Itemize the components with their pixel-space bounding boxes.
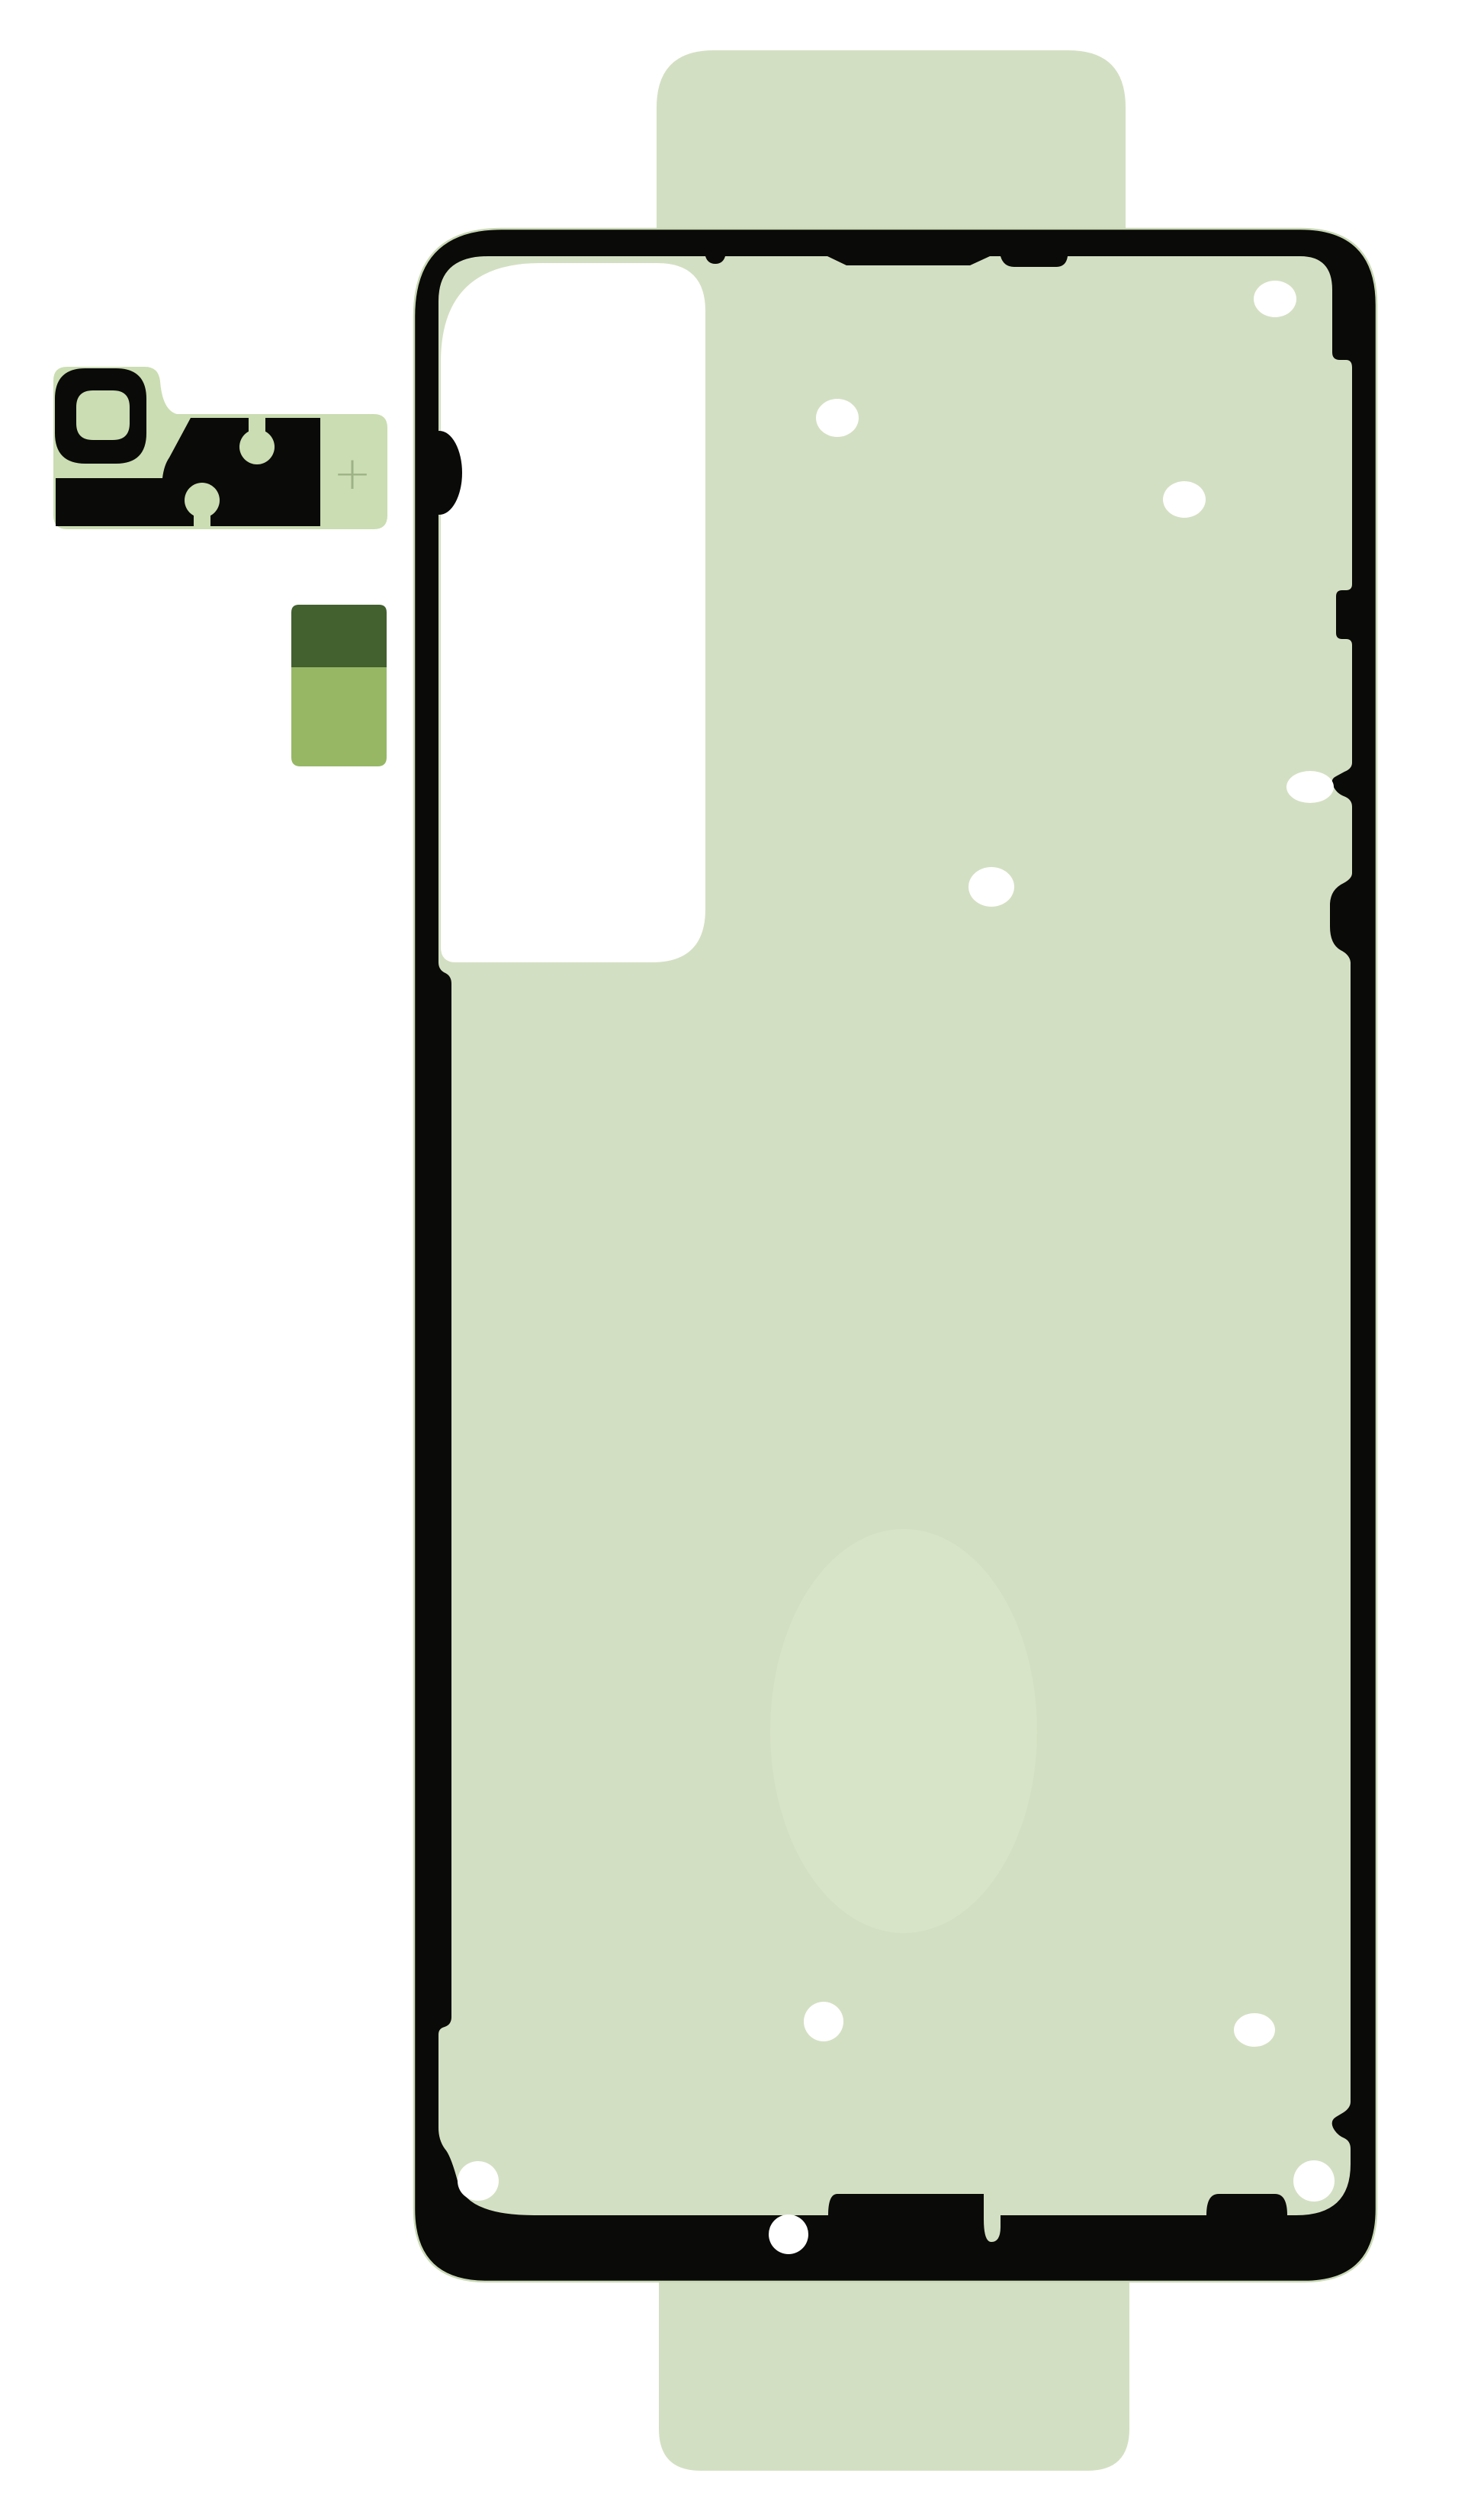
adhesive-hole bbox=[968, 867, 1014, 907]
keyhole-circle-top bbox=[239, 429, 275, 464]
camera-island-cutout bbox=[441, 263, 705, 962]
adhesive-kit-illustration: + bbox=[0, 0, 1484, 2518]
plus-registration-mark: + bbox=[333, 447, 371, 500]
adhesive-hole bbox=[1293, 2160, 1335, 2202]
liner-sheen-blob bbox=[770, 1529, 1037, 1933]
pull-tab-squares-piece bbox=[291, 605, 387, 766]
product-photo: + bbox=[0, 0, 1484, 2518]
adhesive-hole bbox=[1163, 481, 1206, 518]
adhesive-hole bbox=[816, 399, 859, 437]
pull-square-light bbox=[291, 667, 387, 766]
adhesive-hole bbox=[458, 2161, 499, 2201]
adhesive-hole bbox=[1254, 281, 1296, 317]
adhesive-hole bbox=[1234, 2013, 1275, 2047]
gasket-left-bulge bbox=[416, 431, 462, 515]
adhesive-hole bbox=[1286, 771, 1334, 803]
pull-square-dark bbox=[291, 605, 387, 667]
adhesive-hole bbox=[769, 2214, 808, 2254]
adhesive-hole bbox=[804, 2002, 843, 2041]
keyhole-circle-bottom bbox=[185, 483, 220, 518]
bottom-liner-tab bbox=[659, 2257, 1129, 2471]
